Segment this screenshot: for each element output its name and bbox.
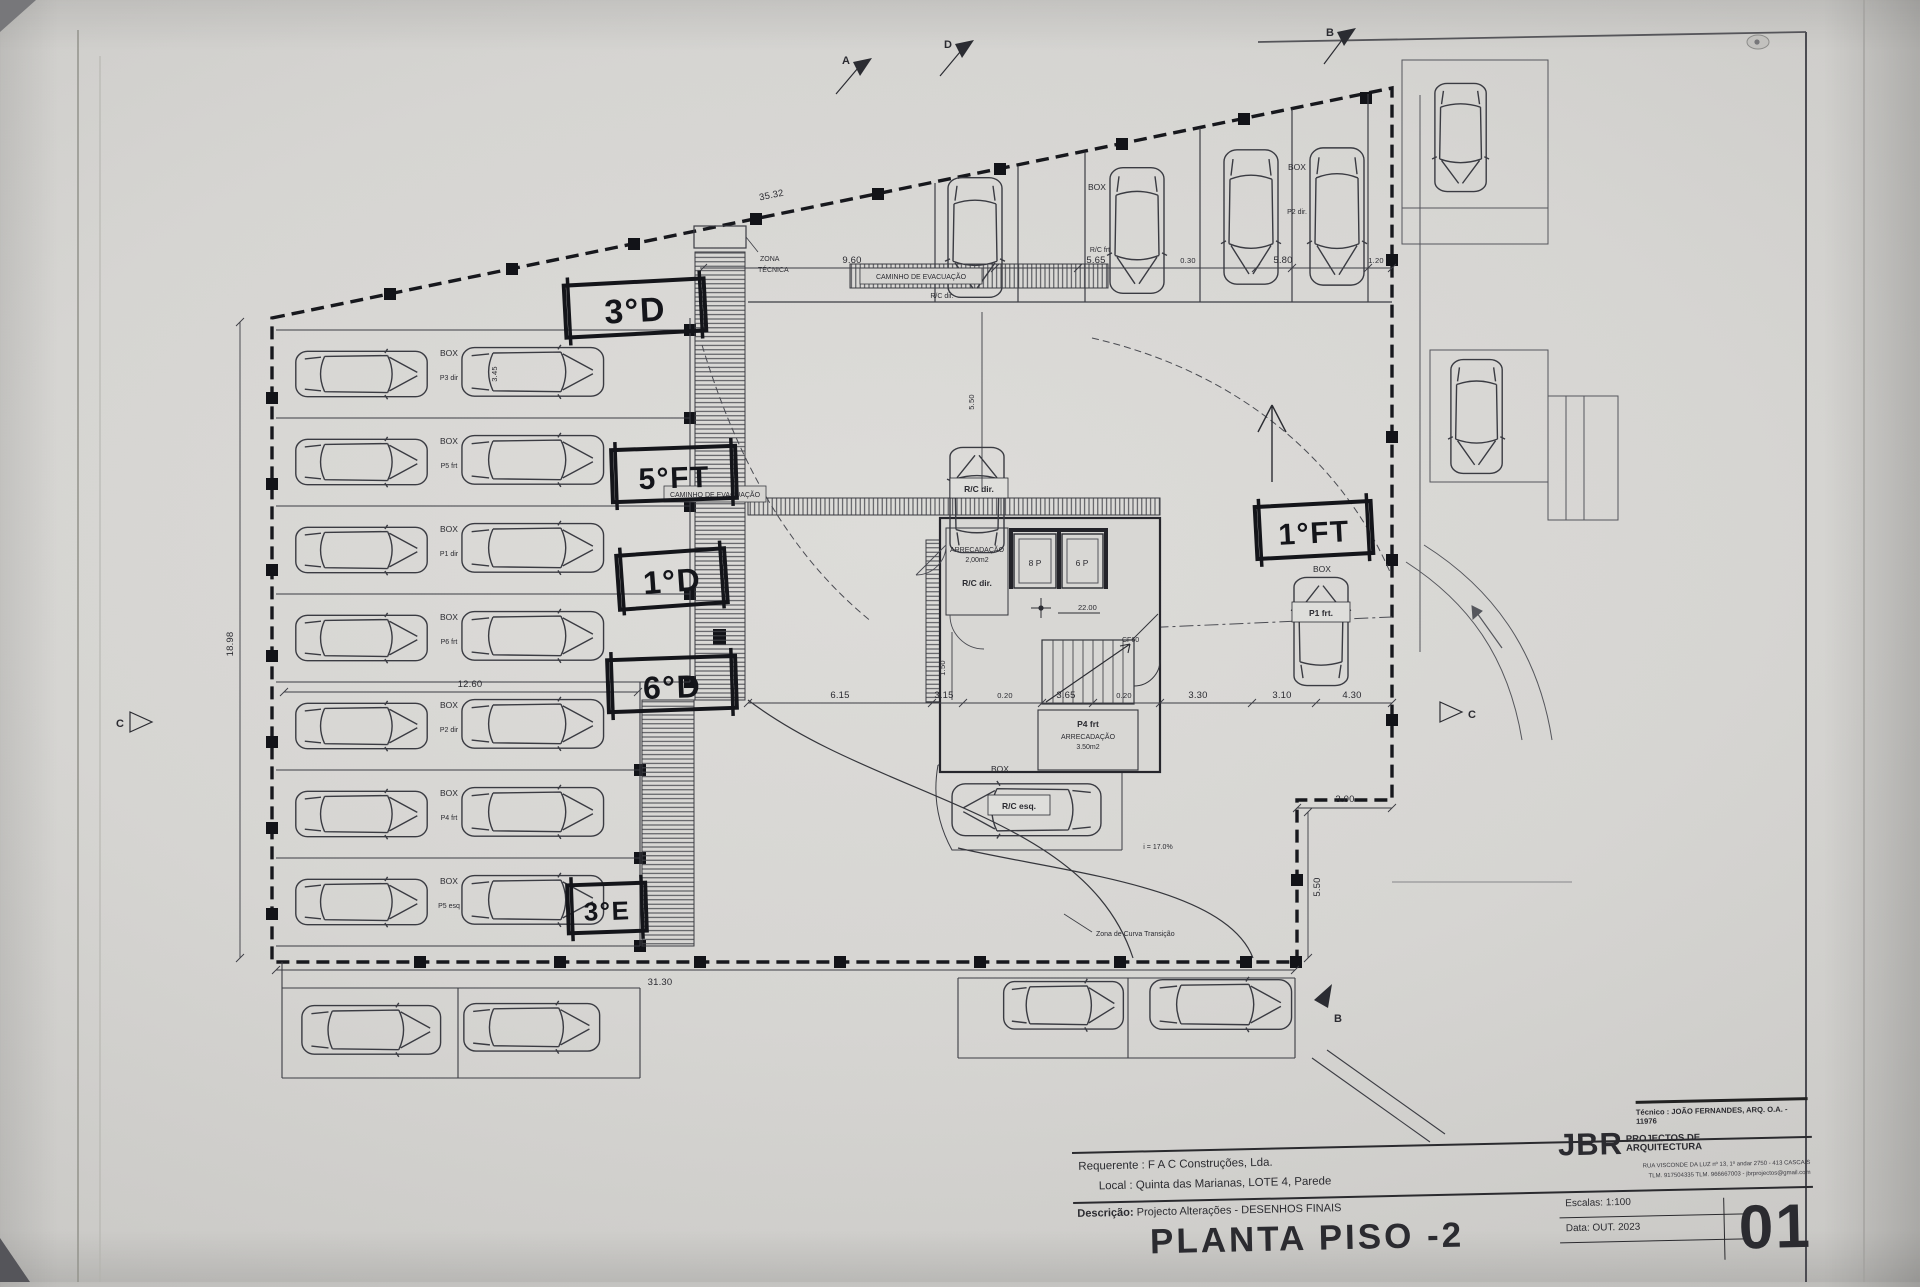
section-letter: C: [1468, 709, 1476, 721]
car: [1291, 577, 1351, 685]
floor-plan-drawing: BOX P3 dir BOX P5 frt BOX P1 dir BOX P6 …: [0, 0, 1920, 1282]
room-label: R/C dir.: [962, 578, 992, 588]
car: [462, 521, 604, 575]
dimension-label: 6.15: [830, 690, 849, 701]
dimension-label: 4.30: [1342, 690, 1361, 701]
handwritten-label: 3°E: [567, 875, 647, 942]
car: [462, 697, 604, 751]
dimensions: 35.32 9.60 5.65 0.30 5.80 1.20 18.98 12.…: [225, 188, 1396, 988]
car: [464, 1001, 600, 1054]
room-label: ARRECADAÇÃO: [950, 545, 1005, 554]
section-letter: B: [1334, 1013, 1342, 1025]
section-markers: A D B C C B: [116, 27, 1476, 1025]
fire-door-label: CF60: [1122, 637, 1139, 644]
dimension-label: 0.30: [1180, 256, 1195, 265]
room-label: P4 frt: [1077, 719, 1099, 729]
box-label: BOX: [440, 788, 458, 798]
car: [1448, 360, 1505, 474]
central-core: [916, 518, 1160, 772]
svg-text:6°D: 6°D: [642, 668, 701, 706]
dimension-label: 5.80: [1273, 255, 1292, 266]
parking-space-label: P4 frt: [441, 815, 458, 822]
date-field: Data: OUT. 2023: [1566, 1219, 1742, 1234]
firm-type: PROJECTOS DE ARQUITECTURA: [1626, 1131, 1776, 1153]
dimension-label: 3.65: [1056, 690, 1075, 701]
car: [296, 789, 427, 839]
car: [1221, 150, 1281, 284]
car: [296, 877, 427, 927]
section-letter: C: [116, 718, 124, 730]
dimension-label: 9.60: [842, 255, 861, 266]
dimension-label: 5.50: [1312, 877, 1323, 896]
lift-label: 6 P: [1076, 558, 1089, 568]
dimension-label: 12.60: [458, 679, 483, 690]
box-label: BOX: [440, 436, 458, 446]
title-block-rule: [1560, 1213, 1746, 1218]
dimension-label: 1.50: [938, 660, 947, 675]
box-label: BOX: [440, 612, 458, 622]
car: [462, 873, 604, 927]
dimension-label: 5.65: [1086, 255, 1105, 266]
handwritten-label: 1°FT: [1254, 493, 1373, 567]
car: [296, 437, 427, 487]
description-label: Descrição:: [1077, 1207, 1134, 1220]
section-letter: B: [1326, 27, 1334, 39]
car: [1107, 168, 1167, 294]
car: [1150, 977, 1292, 1032]
level-label: 22.00: [1078, 603, 1097, 612]
box-label: BOX: [1088, 182, 1106, 192]
svg-text:3°E: 3°E: [583, 895, 631, 927]
firm-logo: JBR: [1558, 1126, 1624, 1163]
title-block-rule: [1560, 1238, 1746, 1243]
car: [296, 701, 427, 751]
box-label: BOX: [440, 700, 458, 710]
car: [296, 525, 427, 575]
dimension-label: 3.45: [490, 366, 499, 381]
dimension-label: 5.50: [967, 394, 976, 409]
dimension-label: 3.15: [934, 690, 953, 701]
dimension-label: 3.10: [1272, 690, 1291, 701]
box-label: BOX: [440, 876, 458, 886]
lift-label: 8 P: [1029, 558, 1042, 568]
slope-label: i = 17.0%: [1143, 844, 1172, 851]
title-block: Requerente : F A C Construções, Lda. Loc…: [1072, 1136, 1815, 1280]
parking-space-label: P3 dir: [440, 375, 459, 382]
left-parking-block: [276, 318, 690, 946]
box-label: BOX: [440, 524, 458, 534]
svg-text:1°FT: 1°FT: [1278, 515, 1351, 552]
dimension-label: 3.30: [1188, 690, 1207, 701]
car: [296, 349, 427, 399]
box-label: BOX: [991, 764, 1009, 774]
firm-block: JBRPROJECTOS DE ARQUITECTURA RUA VISCOND…: [1558, 1122, 1811, 1183]
car-tag-label: R/C esq.: [1002, 801, 1036, 811]
car: [1432, 83, 1489, 191]
svg-text:5°FT: 5°FT: [638, 461, 710, 496]
room-area: 2,00m2: [965, 557, 988, 564]
section-letter: A: [842, 55, 850, 67]
car: [1307, 148, 1367, 285]
site-boundary: [266, 88, 1398, 968]
car: [462, 345, 604, 399]
svg-text:3°D: 3°D: [603, 290, 666, 331]
room-area: 3.50m2: [1076, 744, 1099, 751]
bottom-strip: [282, 962, 1445, 1142]
car: [462, 609, 604, 663]
parking-space-label: P2 dir: [440, 727, 459, 734]
parking-space-label: R/C dir.: [930, 293, 953, 300]
car: [462, 433, 604, 487]
scale-field: Escalas: 1:100: [1565, 1194, 1741, 1209]
photo-of-architectural-sheet: { "sheet": { "handwritten_labels": ["3°D…: [0, 0, 1920, 1282]
box-label: BOX: [440, 348, 458, 358]
dimension-label: 0.20: [1116, 691, 1131, 700]
location-field: Local : Quinta das Marianas, LOTE 4, Par…: [1099, 1175, 1332, 1192]
dimension-label: 3.00: [1335, 794, 1354, 805]
parking-space-label: P2 dir.: [1287, 209, 1307, 216]
box-label: BOX: [1313, 564, 1331, 574]
dimension-label: 1.20: [1368, 256, 1383, 265]
neighbour-structures: [1392, 60, 1618, 882]
parking-space-label: P6 frt: [441, 639, 458, 646]
parking-space-label: P1 dir: [440, 551, 459, 558]
car: [462, 785, 604, 839]
drawing-title: PLANTA PISO -2: [1150, 1215, 1465, 1262]
section-letter: D: [944, 39, 952, 51]
zone-label: ZONA: [760, 256, 780, 263]
dimension-label: 31.30: [648, 977, 673, 988]
evacuation-path-label: CAMINHO DE EVACUAÇÃO: [876, 272, 967, 281]
parking-space-label: P5 esq: [438, 903, 460, 910]
description-field: Descrição: Projecto Alterações - DESENHO…: [1077, 1202, 1341, 1220]
car: [1004, 979, 1124, 1032]
client-field: Requerente : F A C Construções, Lda.: [1078, 1157, 1273, 1173]
dimension-label: 0.20: [997, 691, 1012, 700]
parking-space-label: R/C frt: [1090, 247, 1110, 254]
curve-zone-label: Zona de Curva Transição: [1096, 931, 1175, 938]
box-label: BOX: [1288, 162, 1306, 172]
dimension-label: 35.32: [758, 188, 784, 204]
car-tag-label: R/C dir.: [964, 484, 994, 494]
zone-label: TÉCNICA: [758, 265, 789, 274]
car: [302, 1003, 441, 1057]
parking-space-label: P5 frt: [441, 463, 458, 470]
car: [296, 613, 427, 663]
dimension-label: 18.98: [225, 632, 236, 657]
description-value: Projecto Alterações - DESENHOS FINAIS: [1137, 1202, 1342, 1218]
svg-text:1°D: 1°D: [642, 561, 703, 601]
sheet-number: 01: [1723, 1196, 1812, 1260]
room-label: ARRECADAÇÃO: [1061, 732, 1116, 741]
car-tag-label: P1 frt.: [1309, 608, 1333, 618]
